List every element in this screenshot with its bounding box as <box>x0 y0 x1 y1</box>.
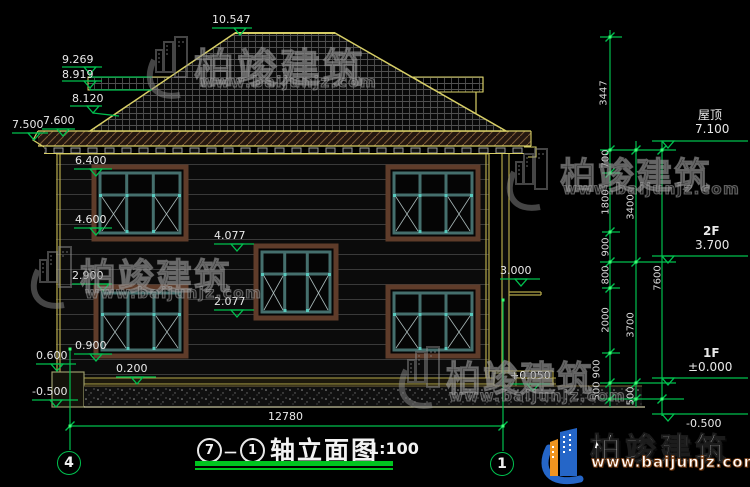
axis-bubble-1: 1 <box>490 452 514 476</box>
level-plinth: 0.600 <box>36 349 68 362</box>
brand-logo-icon <box>545 428 580 481</box>
level-eave-top: 7.600 <box>43 114 75 127</box>
dim-inner-4: 2000 <box>601 307 612 332</box>
dim-mid-1: 3700 <box>626 312 637 337</box>
level-ground: -0.500 <box>32 385 67 398</box>
level-w2-head: 6.400 <box>75 154 107 167</box>
watermark-url-bottom: www.baijunjz.com <box>449 387 626 405</box>
level-eave-bottom: 7.500 <box>12 118 44 131</box>
level-canopy: 3.000 <box>500 264 532 277</box>
title-underline-thick <box>195 461 393 466</box>
level-ridge: 10.547 <box>212 13 251 26</box>
window-stair <box>256 246 336 318</box>
level-w2-sill: 4.600 <box>75 213 107 226</box>
watermark-url-top: www.baijunjz.com <box>200 73 377 91</box>
rafter-row <box>44 147 524 153</box>
floor-2f-level: 3.700 <box>695 238 729 252</box>
window-1f-right <box>388 287 478 356</box>
level-w1-sill: 0.900 <box>75 339 107 352</box>
title-axis-to: 1 <box>240 438 265 463</box>
floor-roof-level: 7.100 <box>695 122 729 136</box>
drawing-scale: 1:100 <box>368 439 419 458</box>
floor-1f-level: ±0.000 <box>688 360 732 374</box>
floor-1f-label: 1F <box>703 346 720 360</box>
dim-overall-width: 12780 <box>268 410 303 423</box>
dim-mid-2: 500 <box>626 386 637 405</box>
title-underline-thin <box>195 468 393 470</box>
dim-inner-3: 800 <box>601 265 612 284</box>
dim-above-roof: 3447 <box>599 80 610 105</box>
dim-total: 7600 <box>653 265 664 290</box>
floor-roof-label: 屋顶 <box>698 106 722 123</box>
watermark-url-right: www.baijunjz.com <box>563 180 740 198</box>
level-slope: 8.120 <box>72 92 104 105</box>
title-separator: － <box>223 442 238 463</box>
axis-bubble-4: 4 <box>57 451 81 475</box>
elevation-drawing: 10.547 9.269 8.919 8.120 7.500 7.600 6.4… <box>0 0 750 487</box>
watermark-url-left: www.baijunjz.com <box>85 284 262 302</box>
level-stair-head: 4.077 <box>214 229 246 242</box>
level-rear-ridge: 9.269 <box>62 53 94 66</box>
floor-2f-label: 2F <box>703 224 720 238</box>
dim-inner-2: 900 <box>601 237 612 256</box>
brand-logo-url: www.baijunjz.com <box>591 453 750 471</box>
eaves-band <box>33 131 536 157</box>
side-canopy <box>509 292 541 295</box>
level-rear-eave: 8.919 <box>62 68 94 81</box>
window-2f-right <box>388 167 478 239</box>
title-axis-from: 7 <box>197 438 222 463</box>
level-base: 0.200 <box>116 362 148 375</box>
